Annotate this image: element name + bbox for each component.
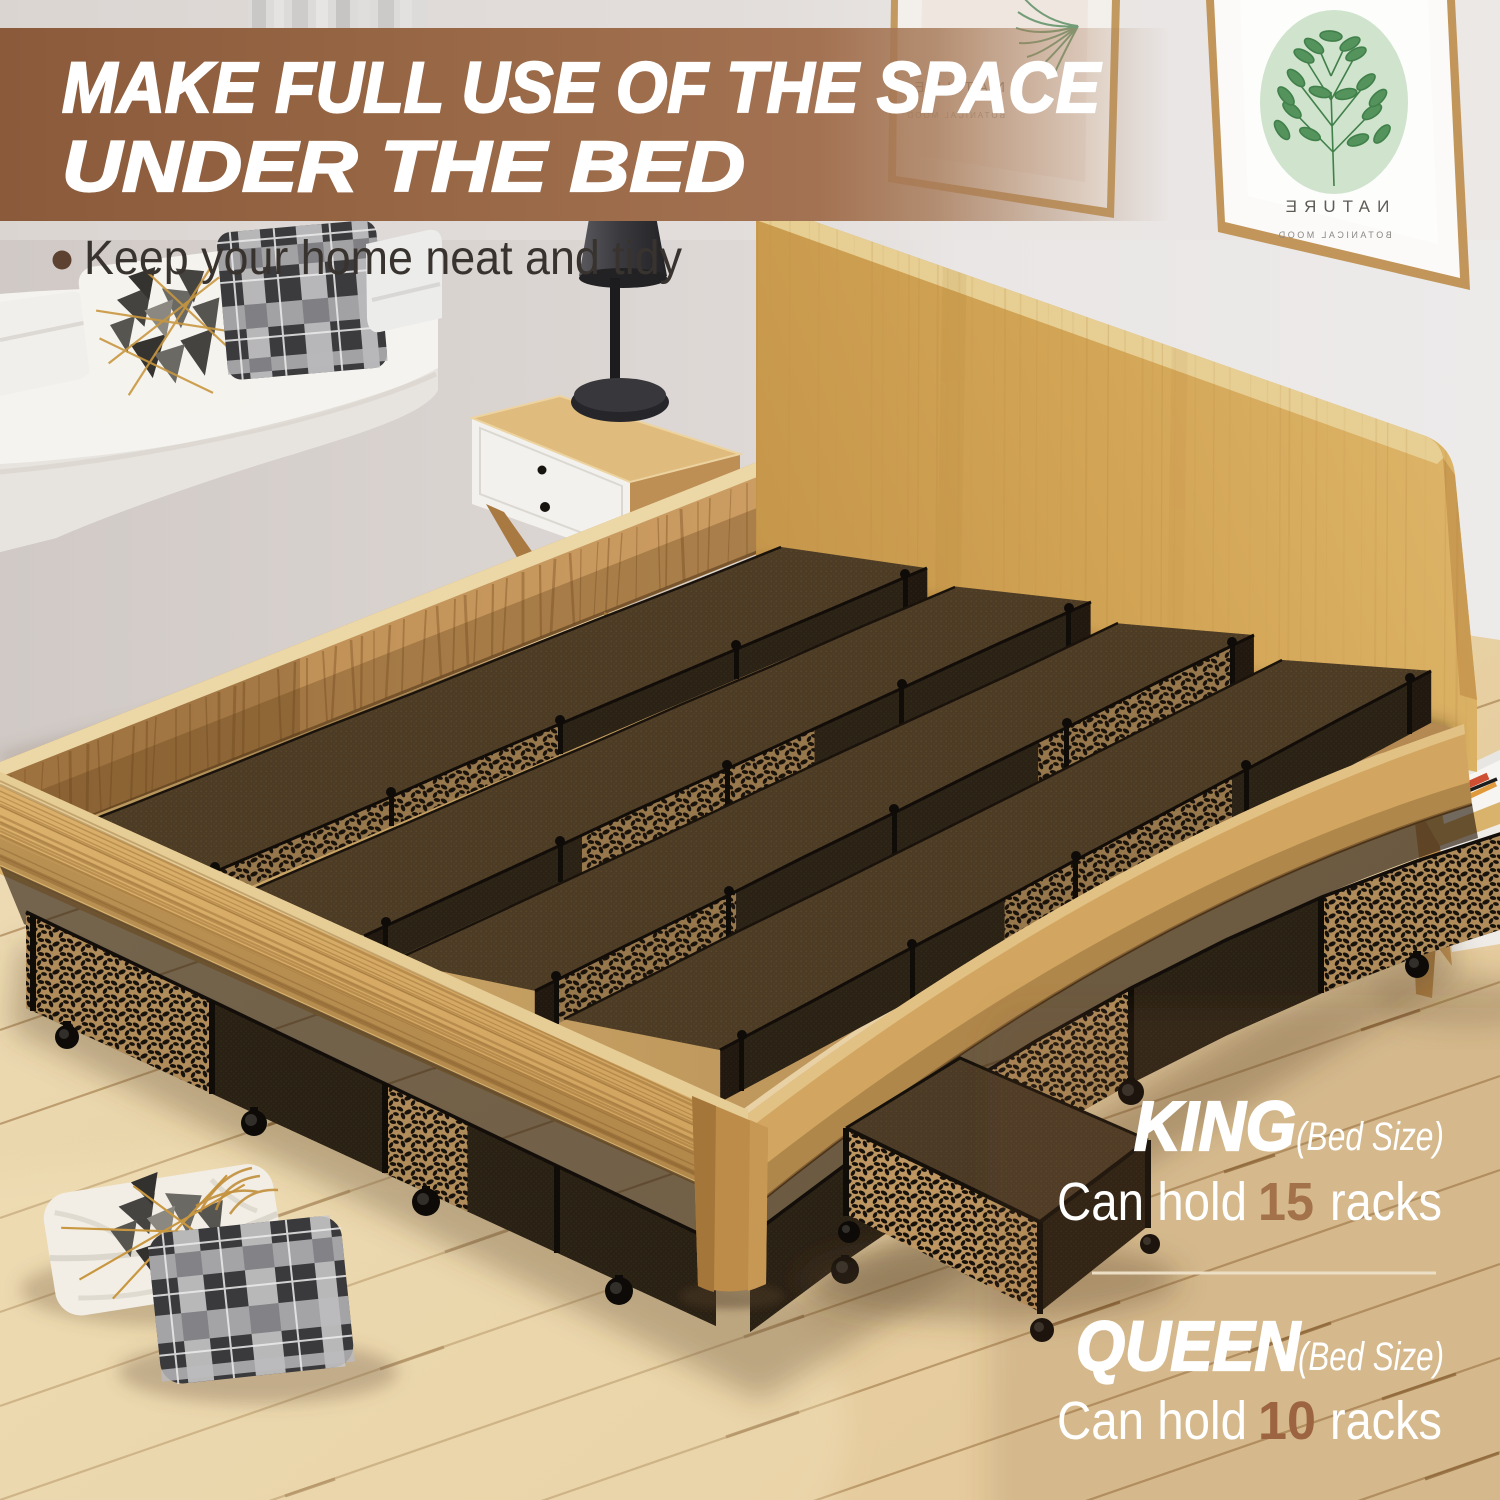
svg-text:BOTANICAL MOOD: BOTANICAL MOOD bbox=[1276, 230, 1392, 240]
svg-text:Can hold: Can hold bbox=[1057, 1391, 1247, 1451]
svg-text:UNDER THE BED: UNDER THE BED bbox=[62, 128, 745, 207]
svg-text:(Bed Size): (Bed Size) bbox=[1298, 1335, 1444, 1379]
svg-text:(Bed Size): (Bed Size) bbox=[1296, 1115, 1444, 1159]
svg-text:10: 10 bbox=[1258, 1391, 1316, 1451]
svg-text:NATURE: NATURE bbox=[1279, 197, 1390, 216]
svg-text:Can hold: Can hold bbox=[1057, 1172, 1247, 1232]
svg-text:racks: racks bbox=[1330, 1391, 1442, 1451]
svg-text:KING: KING bbox=[1134, 1087, 1296, 1165]
svg-text:Keep your home neat and tidy: Keep your home neat and tidy bbox=[84, 232, 682, 285]
svg-text:racks: racks bbox=[1330, 1172, 1442, 1232]
svg-text:MAKE FULL USE OF THE SPACE: MAKE FULL USE OF THE SPACE bbox=[62, 49, 1102, 128]
svg-text:15: 15 bbox=[1258, 1172, 1314, 1232]
svg-text:QUEEN: QUEEN bbox=[1076, 1307, 1301, 1385]
